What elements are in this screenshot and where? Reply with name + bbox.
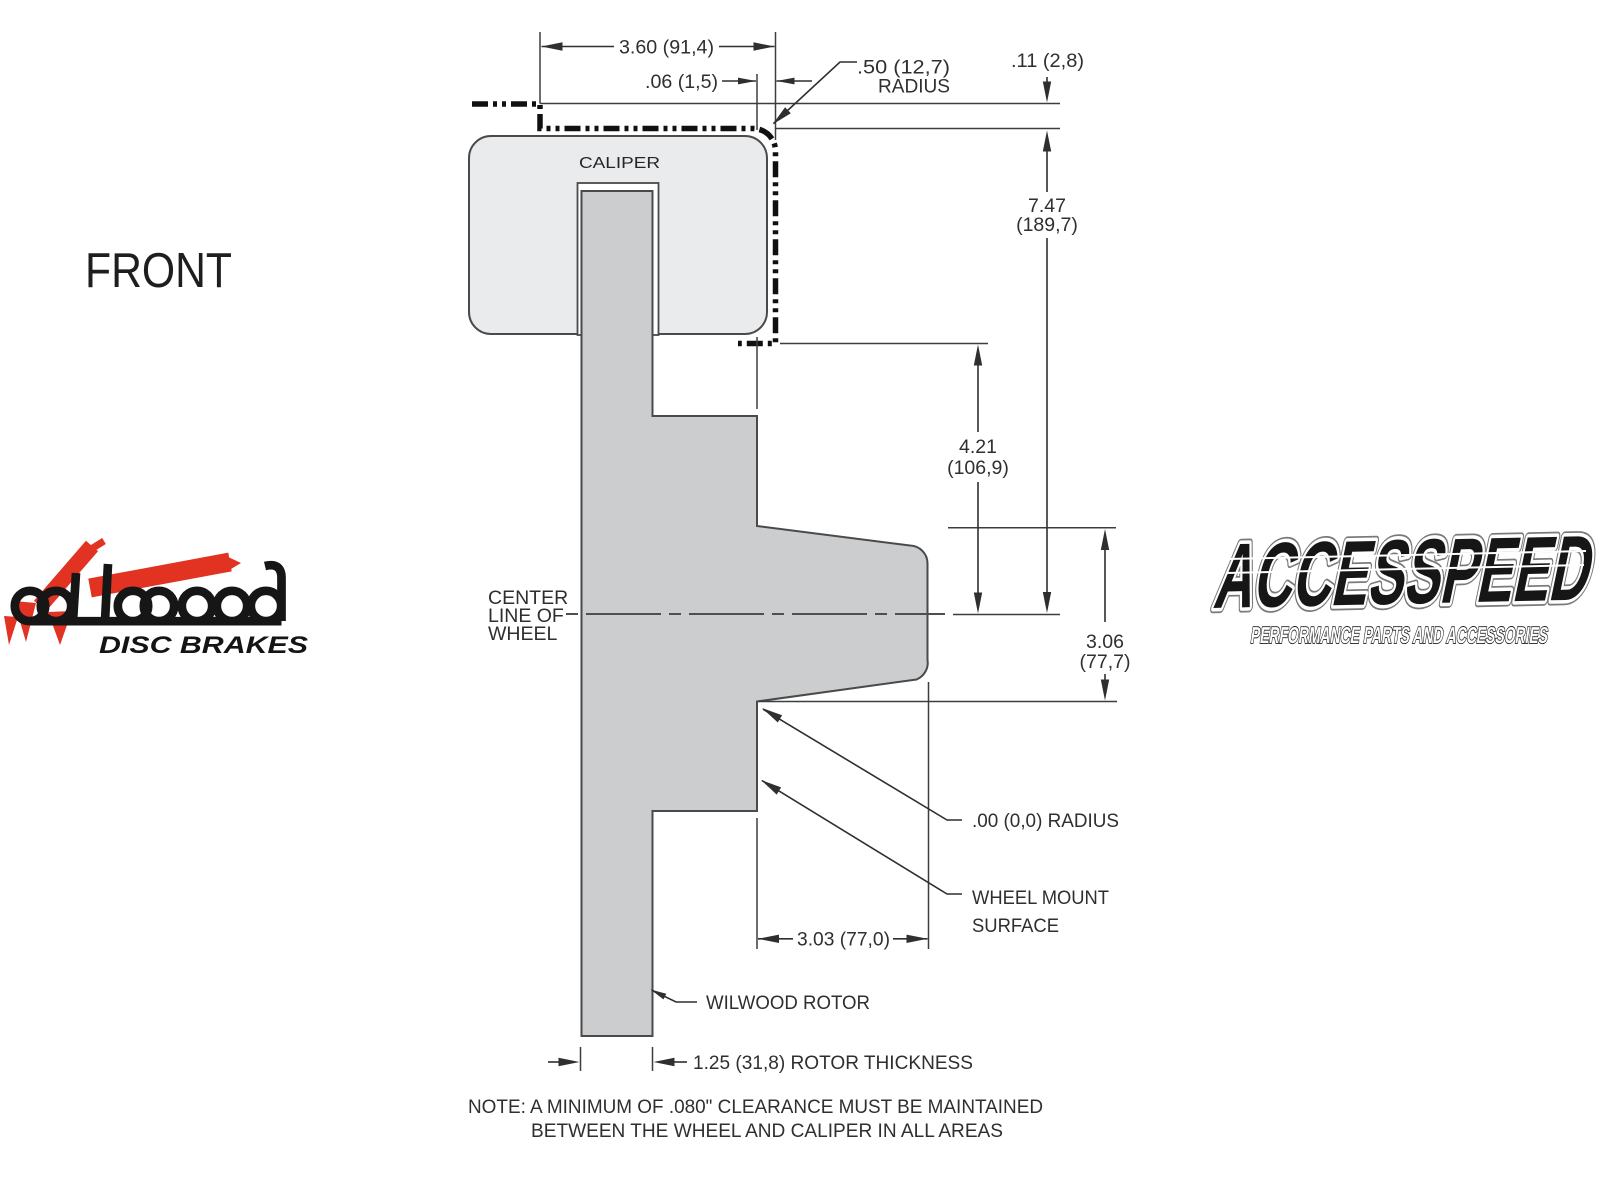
svg-text:3.03 (77,0): 3.03 (77,0) xyxy=(797,929,890,951)
svg-text:.11 (2,8): .11 (2,8) xyxy=(1011,50,1084,72)
svg-text:.00 (0,0) RADIUS: .00 (0,0) RADIUS xyxy=(972,810,1119,832)
svg-text:3.60 (91,4): 3.60 (91,4) xyxy=(619,37,714,59)
svg-text:SURFACE: SURFACE xyxy=(972,915,1059,937)
svg-text:FRONT: FRONT xyxy=(85,244,232,298)
svg-text:CALIPER: CALIPER xyxy=(579,155,660,172)
svg-text:NOTE: A MINIMUM OF .080" CLEAR: NOTE: A MINIMUM OF .080" CLEARANCE MUST … xyxy=(468,1096,1043,1118)
svg-text:WILWOOD ROTOR: WILWOOD ROTOR xyxy=(706,992,870,1014)
svg-text:(77,7): (77,7) xyxy=(1080,651,1131,673)
svg-text:(106,9): (106,9) xyxy=(947,457,1009,479)
svg-text:WHEEL MOUNT: WHEEL MOUNT xyxy=(972,887,1109,909)
svg-text:BETWEEN THE WHEEL AND CALIPER: BETWEEN THE WHEEL AND CALIPER IN ALL ARE… xyxy=(531,1120,1003,1142)
svg-text:.06 (1,5): .06 (1,5) xyxy=(645,71,718,93)
svg-text:RADIUS: RADIUS xyxy=(878,76,950,98)
svg-text:4.21: 4.21 xyxy=(959,436,997,458)
svg-text:1.25 (31,8) ROTOR THICKNESS: 1.25 (31,8) ROTOR THICKNESS xyxy=(693,1052,973,1074)
svg-text:(189,7): (189,7) xyxy=(1016,214,1078,236)
svg-text:DISC BRAKES: DISC BRAKES xyxy=(99,632,308,659)
svg-text:PERFORMANCE PARTS AND ACCESSOR: PERFORMANCE PARTS AND ACCESSORIES xyxy=(1249,622,1550,648)
svg-text:3.06: 3.06 xyxy=(1086,631,1124,653)
svg-text:WHEEL: WHEEL xyxy=(488,623,558,645)
